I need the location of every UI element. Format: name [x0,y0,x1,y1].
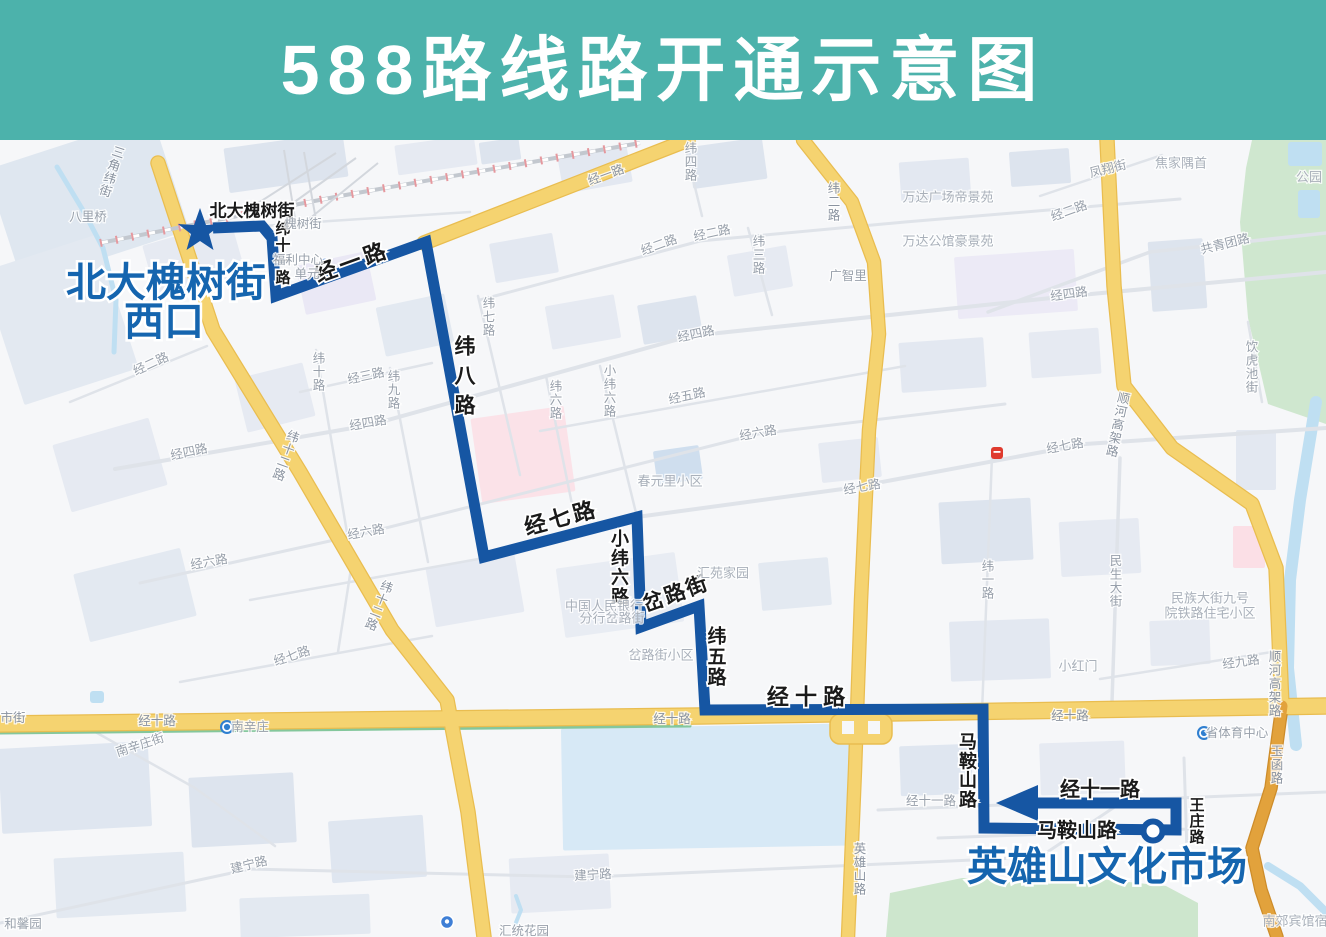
city-block [509,853,612,913]
city-block [898,337,986,393]
city-block [949,618,1051,681]
route-588-poster: 588路线路开通示意图 北大槐树街纬十一路经一路纬八路经七路小纬六路岔路街纬五路… [0,0,1326,937]
map-area-label: 万达广场帝景苑 [902,190,993,205]
route-street-label: 小纬六路 [611,529,630,607]
map-street-label: 纬二路 [828,182,841,223]
city-block [1149,619,1211,666]
city-block [758,557,832,611]
ramp-hole [842,721,854,734]
route-street-label: 纬八路 [455,334,477,417]
map-street-label: 纬三路 [753,235,766,276]
map-area-label: 汇苑家园 [697,566,749,581]
map-street-label: 经十路 [1051,708,1089,723]
map-street-label: 纬一路 [982,560,995,601]
map-street-label: 经十一路 [906,793,957,808]
map-street-label: 纬四路 [685,142,698,183]
map-street-label: 纬六路 [550,380,563,421]
map-area-label: 岔路街小区 [628,648,693,663]
map-street-label: 英雄山路 [854,842,867,897]
poster-header: 588路线路开通示意图 [0,0,1326,140]
city-block [239,894,370,937]
map-street-label: 纬九路 [388,370,401,411]
water-pond [1288,142,1322,166]
route-street-label: 经十一路 [1060,777,1141,801]
ramp-hole [868,721,880,734]
map-street-label: 广智里 [829,268,867,283]
map-area-label: 焦家隅首 [1155,156,1207,171]
map-street-label: 槐树街 [284,216,322,231]
map-street-label: 市街 [0,710,25,725]
map-street-label: 小纬六路 [604,364,617,419]
brand-poi-icon [991,447,1003,459]
city-block [1236,430,1276,490]
map-street-label: 经十路 [138,713,176,728]
map-street-label: 汇统花园 [499,923,549,937]
city-block [1028,328,1101,379]
route-street-label: 王庄路 [1189,796,1205,845]
map-area-label: 公园 [1296,170,1322,185]
city-block [1059,518,1142,577]
map-area-label: 春元里小区 [637,474,702,489]
map-street-label: 顺河高架路 [1269,650,1282,718]
map-area-label: 民族大街九号 [1171,591,1249,606]
poi-dot-icon [445,919,449,923]
station-name-label: 北大槐树街 [66,261,266,305]
map-area-label: 南郊宾馆宿 [1262,914,1326,929]
brand-poi-icon [994,451,1001,453]
city-block [561,723,853,850]
interchange-ramp [830,714,892,744]
city-block [1009,148,1071,187]
map-street-label: 福利中心 [273,252,324,267]
map-canvas: 北大槐树街纬十一路经一路纬八路经七路小纬六路岔路街纬五路经 十 路马鞍山路经十一… [0,140,1326,937]
map-area-label: 万达公馆豪景苑 [902,234,993,249]
map-street-label: 建宁路 [574,866,613,883]
water-pond [1298,190,1320,218]
map-street-label: 南辛庄 [231,719,269,734]
route-street-label: 马鞍山路 [1037,818,1118,842]
terminal-circle-marker [1144,822,1163,841]
route-map: 北大槐树街纬十一路经一路纬八路经七路小纬六路岔路街纬五路经 十 路马鞍山路经十一… [0,140,1326,937]
map-street-label: 纬十路 [313,352,326,393]
map-area-label: 小红门 [1058,659,1097,674]
route-street-label: 纬五路 [707,624,727,688]
station-name-label: 西口 [124,300,204,344]
map-street-label: 单元 [294,267,319,281]
city-block [470,406,575,504]
map-street-label: 民生大街 [1110,554,1123,609]
city-block [938,498,1033,565]
map-area-label: 分行岔路街 [579,611,644,626]
route-street-label: 经 十 路 [767,685,846,710]
map-street-label: 饮虎池街 [1246,340,1259,395]
water-pond [90,691,104,703]
poster-title: 588路线路开通示意图 [281,35,1046,105]
map-street-label: 经十路 [653,711,691,726]
route-street-label: 北大槐树街 [210,201,295,221]
map-street-label: 纬七路 [483,297,496,338]
route-street-label: 马鞍山路 [959,732,978,810]
map-street-label: 玉函路 [1271,745,1284,786]
station-name-label: 英雄山文化市场 [967,845,1247,889]
map-street-label: 八里桥 [69,210,107,224]
map-street-label: 省体育中心 [1206,725,1269,740]
city-block [188,772,297,847]
map-area-label: 院铁路住宅小区 [1164,606,1255,621]
map-street-label: 和馨园 [4,916,42,931]
